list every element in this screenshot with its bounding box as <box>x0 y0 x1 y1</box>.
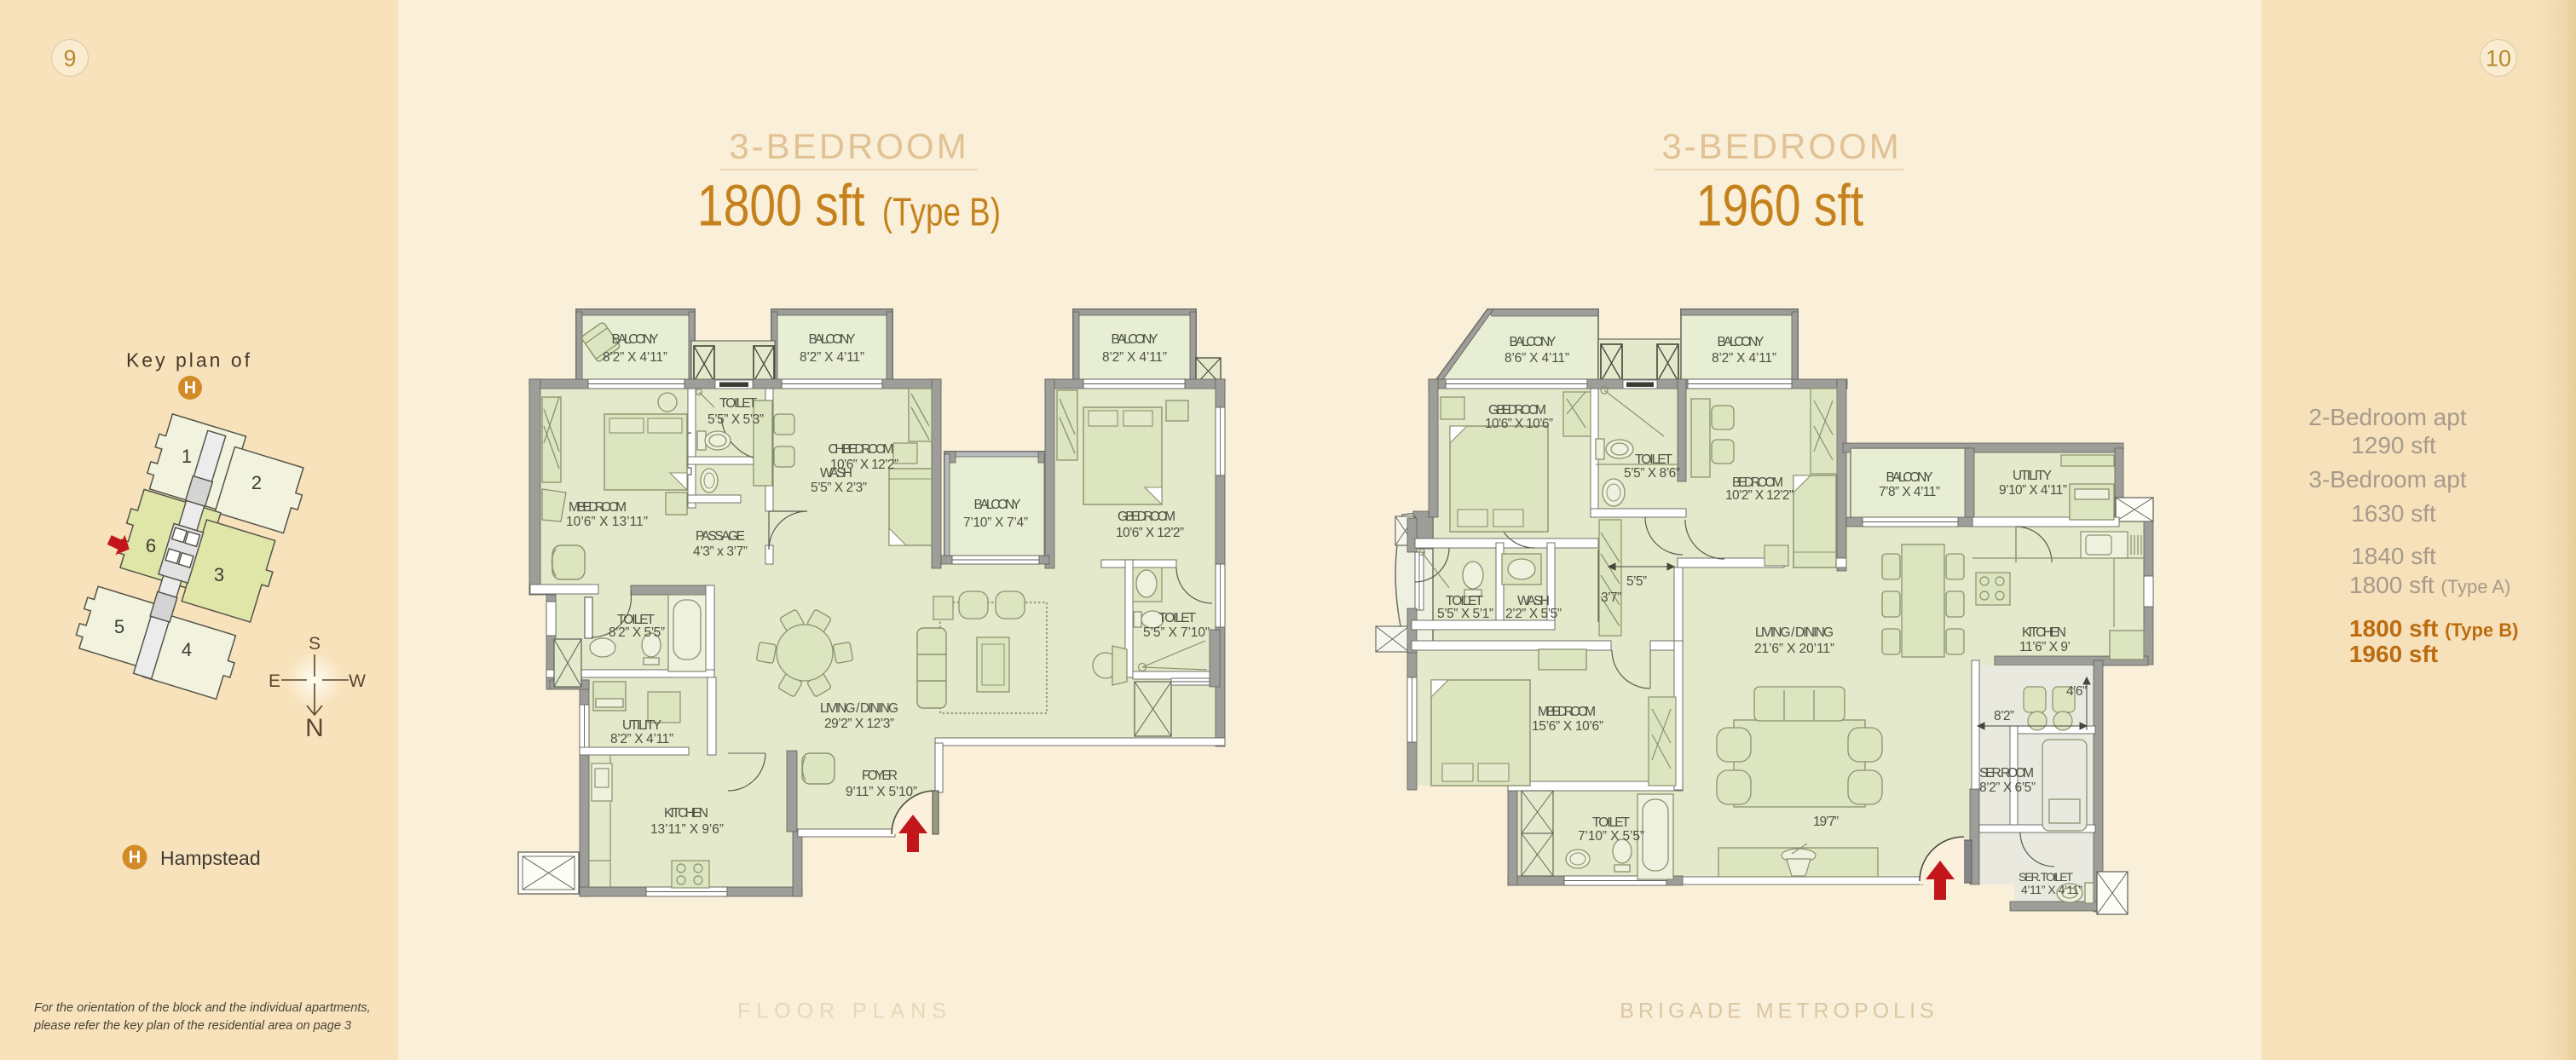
svg-text:SER. TOILET: SER. TOILET <box>2019 870 2073 884</box>
svg-text:BALCONY: BALCONY <box>1510 335 1557 349</box>
svg-text:8’2” X 6’5”: 8’2” X 6’5” <box>1979 781 2036 795</box>
svg-text:G.BEDROOM: G.BEDROOM <box>1118 510 1175 524</box>
svg-text:PASSAGE: PASSAGE <box>696 529 745 544</box>
svg-text:S: S <box>309 634 321 654</box>
svg-text:BALCONY: BALCONY <box>1886 470 1933 485</box>
svg-text:10’6” X 13’11”: 10’6” X 13’11” <box>566 515 648 529</box>
svg-text:BALCONY: BALCONY <box>1112 332 1158 347</box>
svg-text:2’2” X 5’5”: 2’2” X 5’5” <box>1505 607 1562 621</box>
svg-text:UTILITY: UTILITY <box>622 718 661 733</box>
svg-text:7’10” X 5’5”: 7’10” X 5’5” <box>1578 829 1644 844</box>
svg-text:3: 3 <box>214 564 224 585</box>
svg-text:11’6” X 9’: 11’6” X 9’ <box>2019 640 2071 654</box>
svg-text:10’6” X 12’2”: 10’6” X 12’2” <box>830 458 898 472</box>
svg-text:15’6” X 10’6”: 15’6” X 10’6” <box>1532 719 1603 734</box>
svg-text:5’5”: 5’5” <box>1626 574 1647 589</box>
svg-text:21’6” X 20’11”: 21’6” X 20’11” <box>1754 642 1834 656</box>
svg-text:10’2” X 12’2”: 10’2” X 12’2” <box>1725 488 1793 503</box>
svg-text:3’7”: 3’7” <box>1601 590 1621 605</box>
svg-text:5’5” X 5’3”: 5’5” X 5’3” <box>708 412 764 427</box>
svg-text:8’6” X 4’11”: 8’6” X 4’11” <box>1505 351 1569 366</box>
svg-text:8’2” X 4’11”: 8’2” X 4’11” <box>800 350 864 365</box>
svg-text:5’5” X 7’10”: 5’5” X 7’10” <box>1143 625 1210 640</box>
svg-text:LIVING / DINING: LIVING / DINING <box>820 701 898 716</box>
svg-text:7’10” X 7’4”: 7’10” X 7’4” <box>963 516 1028 530</box>
svg-text:5’5” X 5’1”: 5’5” X 5’1” <box>1437 607 1493 621</box>
svg-text:29’2” X 12’3”: 29’2” X 12’3” <box>824 717 894 731</box>
svg-text:5: 5 <box>114 616 124 637</box>
svg-text:KITCHEN: KITCHEN <box>2022 625 2066 640</box>
svg-text:KITCHEN: KITCHEN <box>664 806 708 821</box>
svg-text:LIVING / DINING: LIVING / DINING <box>1755 625 1834 640</box>
svg-text:19’7”: 19’7” <box>1813 815 1839 829</box>
svg-text:8’2”: 8’2” <box>1994 709 2014 723</box>
svg-text:8’2” X 4’11”: 8’2” X 4’11” <box>1102 350 1167 365</box>
svg-text:M.BEDROOM: M.BEDROOM <box>1538 705 1596 719</box>
svg-text:M.BEDROOM: M.BEDROOM <box>569 500 627 515</box>
svg-text:TOILET: TOILET <box>1592 815 1631 830</box>
svg-text:6: 6 <box>146 535 156 556</box>
svg-text:TOILET: TOILET <box>1158 611 1197 625</box>
svg-text:10’6” X 10’6”: 10’6” X 10’6” <box>1485 417 1553 431</box>
svg-text:FOYER: FOYER <box>862 769 898 783</box>
svg-text:1: 1 <box>182 446 192 467</box>
svg-text:13’11” X 9’6”: 13’11” X 9’6” <box>650 822 724 837</box>
svg-text:BALCONY: BALCONY <box>809 332 856 347</box>
svg-text:8’2” X 4’11”: 8’2” X 4’11” <box>603 350 667 365</box>
svg-text:4: 4 <box>182 639 192 660</box>
svg-text:BALCONY: BALCONY <box>612 332 659 347</box>
svg-text:4’3” x 3’7”: 4’3” x 3’7” <box>693 544 748 559</box>
svg-text:5’5” X 2’3”: 5’5” X 2’3” <box>811 481 867 495</box>
svg-text:N: N <box>305 714 324 741</box>
svg-text:BALCONY: BALCONY <box>974 498 1021 512</box>
svg-text:10’6” X 12’2”: 10’6” X 12’2” <box>1116 526 1184 540</box>
svg-text:4’11” X 4’11”: 4’11” X 4’11” <box>2021 883 2082 896</box>
svg-text:G.BEDROOM: G.BEDROOM <box>1488 403 1546 418</box>
svg-text:E: E <box>269 671 280 691</box>
svg-text:TOILET: TOILET <box>1635 452 1673 467</box>
svg-text:W: W <box>349 671 366 691</box>
svg-text:8’2” X 4’11”: 8’2” X 4’11” <box>1712 351 1776 366</box>
svg-text:BALCONY: BALCONY <box>1718 335 1765 349</box>
svg-text:TOILET: TOILET <box>719 396 758 411</box>
svg-text:2: 2 <box>251 472 262 493</box>
svg-text:5’5” X 8’6”: 5’5” X 8’6” <box>1624 466 1680 481</box>
svg-text:CH.BEDROOM: CH.BEDROOM <box>829 442 894 457</box>
svg-text:9’11” X 5’10”: 9’11” X 5’10” <box>846 785 917 799</box>
svg-text:4’6”: 4’6” <box>2066 684 2087 699</box>
svg-text:8’2” X 5’5”: 8’2” X 5’5” <box>609 625 665 640</box>
svg-text:9’10” X 4’11”: 9’10” X 4’11” <box>1999 483 2067 498</box>
svg-text:8’2” X 4’11”: 8’2” X 4’11” <box>610 732 673 746</box>
svg-text:UTILITY: UTILITY <box>2013 469 2052 483</box>
svg-text:SER. ROOM: SER. ROOM <box>1979 766 2034 781</box>
svg-text:7’8” X 4’11”: 7’8” X 4’11” <box>1879 485 1940 499</box>
